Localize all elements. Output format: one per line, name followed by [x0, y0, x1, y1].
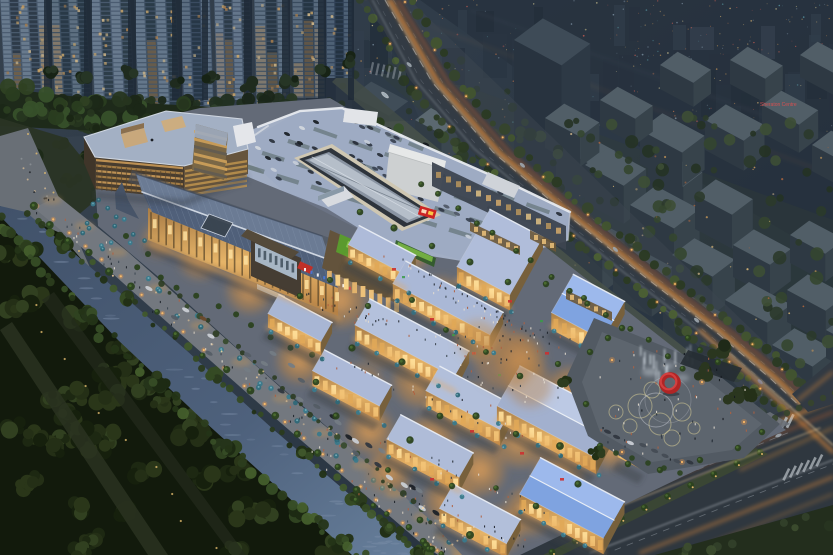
svg-text:Sheraton Centre: Sheraton Centre	[760, 102, 797, 108]
